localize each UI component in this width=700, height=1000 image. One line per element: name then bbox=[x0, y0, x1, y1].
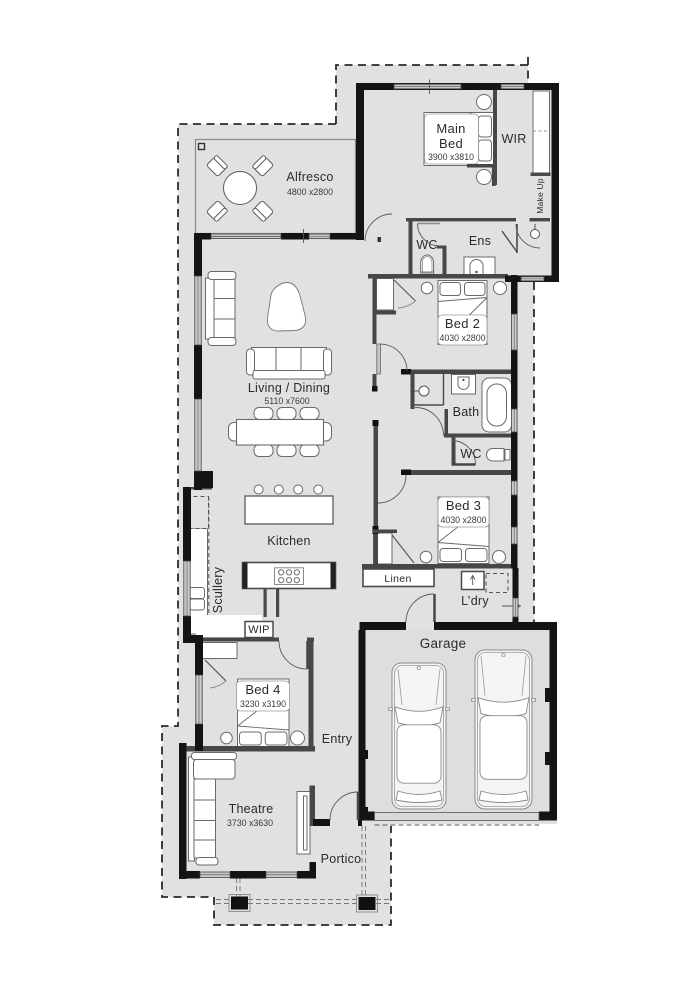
svg-text:5110 x7600: 5110 x7600 bbox=[264, 396, 309, 406]
svg-text:Kitchen: Kitchen bbox=[267, 534, 310, 548]
svg-text:L’dry: L’dry bbox=[461, 594, 489, 608]
svg-text:Make Up: Make Up bbox=[535, 178, 545, 213]
svg-text:Ens: Ens bbox=[469, 234, 491, 248]
svg-text:Living / Dining: Living / Dining bbox=[248, 381, 330, 395]
svg-text:WC: WC bbox=[460, 447, 481, 461]
svg-text:Bed 2: Bed 2 bbox=[445, 316, 480, 331]
svg-text:3900 x3810: 3900 x3810 bbox=[428, 152, 474, 162]
svg-text:Bath: Bath bbox=[453, 405, 480, 419]
svg-text:Bed 3: Bed 3 bbox=[446, 498, 481, 513]
svg-text:Scullery: Scullery bbox=[211, 566, 225, 613]
svg-text:Main: Main bbox=[436, 121, 465, 136]
svg-text:4030 x2800: 4030 x2800 bbox=[441, 515, 487, 525]
svg-text:Alfresco: Alfresco bbox=[286, 170, 333, 184]
svg-text:WIR: WIR bbox=[501, 132, 526, 146]
svg-text:3230 x3190: 3230 x3190 bbox=[240, 699, 286, 709]
svg-text:WIP: WIP bbox=[248, 624, 269, 636]
svg-text:Linen: Linen bbox=[384, 573, 411, 585]
svg-text:4030 x2800: 4030 x2800 bbox=[440, 333, 486, 343]
svg-text:4800 x2800: 4800 x2800 bbox=[287, 187, 333, 197]
svg-text:Theatre: Theatre bbox=[229, 802, 274, 816]
svg-text:Entry: Entry bbox=[322, 732, 353, 746]
svg-text:Bed 4: Bed 4 bbox=[245, 682, 280, 697]
svg-text:Bed: Bed bbox=[439, 136, 463, 151]
svg-text:3730 x3630: 3730 x3630 bbox=[227, 818, 273, 828]
svg-text:Garage: Garage bbox=[420, 636, 467, 651]
svg-text:Portico: Portico bbox=[321, 852, 362, 866]
